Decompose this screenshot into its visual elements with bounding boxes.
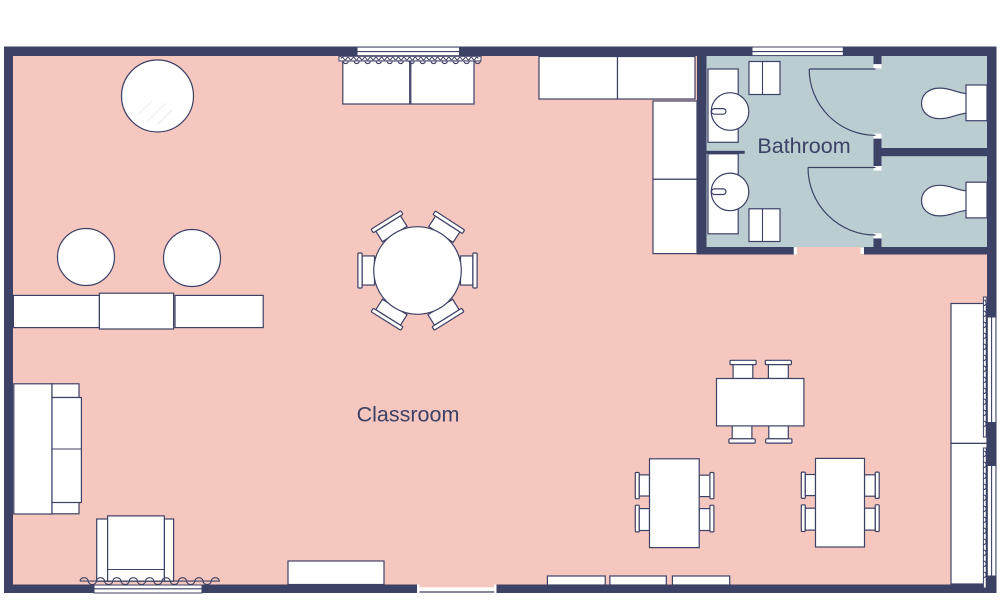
svg-text:Classroom: Classroom (357, 403, 460, 427)
svg-text:Bathroom: Bathroom (757, 134, 850, 158)
